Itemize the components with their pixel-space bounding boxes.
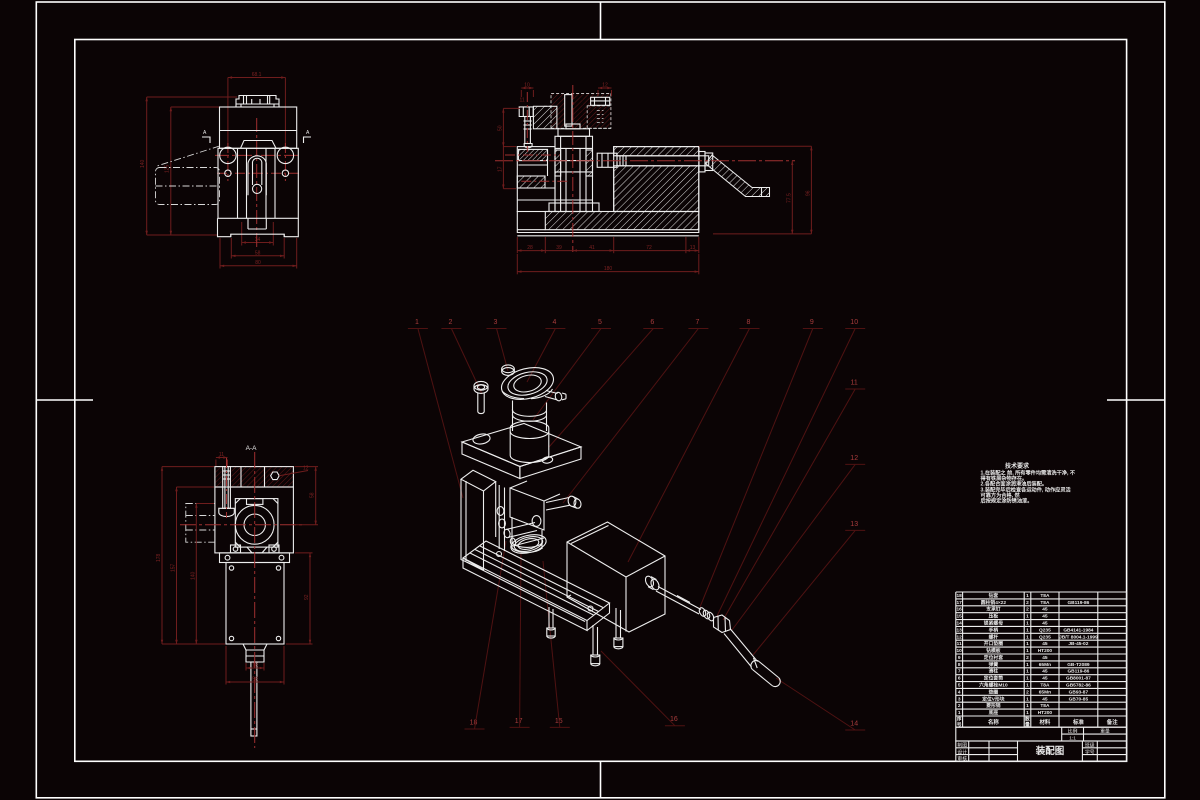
svg-text:58: 58 [252, 676, 258, 682]
svg-text:6: 6 [958, 676, 961, 682]
svg-text:65Mn: 65Mn [1039, 662, 1051, 668]
svg-text:45: 45 [1042, 669, 1048, 675]
svg-text:1: 1 [1026, 627, 1029, 633]
svg-text:1: 1 [1026, 662, 1029, 668]
svg-text:JB/T 8004.1-1999: JB/T 8004.1-1999 [1059, 634, 1098, 640]
svg-text:2: 2 [448, 319, 452, 326]
svg-text:1: 1 [1026, 641, 1029, 647]
svg-text:T8A: T8A [1040, 600, 1050, 606]
svg-text:10: 10 [957, 648, 963, 654]
svg-text:备注: 备注 [1106, 718, 1118, 726]
svg-text:16: 16 [957, 607, 963, 613]
svg-text:2: 2 [1026, 655, 1029, 661]
svg-text:钻模板: 钻模板 [986, 647, 1001, 654]
svg-text:名称: 名称 [988, 718, 999, 726]
svg-text:GB70-85: GB70-85 [1069, 696, 1089, 702]
svg-text:45: 45 [1042, 696, 1048, 702]
svg-text:9: 9 [810, 319, 814, 326]
svg-text:GB5782-86: GB5782-86 [1066, 683, 1091, 689]
svg-text:定位衬套: 定位衬套 [984, 654, 1003, 661]
svg-text:13: 13 [690, 245, 696, 251]
svg-text:45: 45 [1042, 641, 1048, 647]
svg-text:2: 2 [1026, 689, 1029, 695]
svg-text:标准: 标准 [1072, 718, 1084, 726]
svg-text:125: 125 [165, 164, 171, 173]
svg-text:1: 1 [1026, 621, 1029, 627]
svg-text:45: 45 [1042, 655, 1048, 661]
svg-text:15: 15 [957, 614, 963, 620]
svg-text:45: 45 [1042, 614, 1048, 620]
svg-text:GB119-86: GB119-86 [1067, 600, 1089, 606]
svg-text:1: 1 [1026, 648, 1029, 654]
svg-text:9: 9 [958, 655, 961, 661]
svg-text:14: 14 [957, 621, 963, 627]
svg-text:支承钉: 支承钉 [986, 606, 1001, 613]
svg-text:12: 12 [602, 82, 608, 88]
svg-text:7: 7 [695, 319, 699, 326]
svg-text:58: 58 [310, 492, 316, 498]
svg-text:弹簧: 弹簧 [989, 661, 999, 668]
svg-text:制图: 制图 [957, 742, 967, 749]
svg-text:1: 1 [1026, 683, 1029, 689]
svg-text:18: 18 [957, 593, 963, 599]
svg-text:学号: 学号 [1085, 748, 1095, 755]
svg-text:1: 1 [1026, 593, 1029, 599]
svg-text:58: 58 [255, 250, 261, 256]
svg-text:T8A: T8A [1040, 703, 1050, 709]
svg-text:1: 1 [415, 319, 419, 326]
svg-text:装配图: 装配图 [1035, 745, 1065, 757]
svg-text:3: 3 [958, 696, 961, 702]
svg-text:10: 10 [524, 82, 530, 88]
svg-text:班级: 班级 [1085, 742, 1095, 749]
svg-text:1: 1 [1026, 634, 1029, 640]
svg-text:钻套: 钻套 [989, 592, 999, 599]
svg-text:序: 序 [957, 716, 962, 723]
svg-text:六角螺栓M10: 六角螺栓M10 [979, 682, 1008, 689]
svg-text:65Mn: 65Mn [1039, 689, 1051, 695]
svg-text:6: 6 [650, 319, 654, 326]
svg-text:开口垫圈: 开口垫圈 [984, 640, 1003, 647]
svg-text:螺杆: 螺杆 [989, 633, 999, 640]
svg-text:5: 5 [598, 319, 602, 326]
svg-text:1: 1 [1026, 676, 1029, 682]
svg-text:定位套筒: 定位套筒 [984, 675, 1003, 682]
svg-text:GB119-86: GB119-86 [1067, 669, 1089, 675]
svg-text:77.5: 77.5 [786, 193, 792, 203]
svg-text:重量: 重量 [1100, 728, 1110, 735]
svg-text:2: 2 [958, 703, 961, 709]
svg-text:1: 1 [1026, 710, 1029, 716]
svg-text:13: 13 [957, 627, 963, 633]
svg-text:HT200: HT200 [1038, 648, 1053, 654]
svg-text:180: 180 [604, 266, 613, 272]
svg-text:GB93-87: GB93-87 [1069, 689, 1089, 695]
svg-text:审核: 审核 [957, 755, 967, 762]
svg-text:12: 12 [303, 466, 309, 472]
svg-text:数: 数 [1025, 716, 1030, 723]
svg-text:技术要求: 技术要求 [1005, 462, 1030, 470]
svg-text:2: 2 [1026, 607, 1029, 613]
svg-text:45: 45 [1042, 621, 1048, 627]
svg-text:10: 10 [850, 319, 858, 326]
svg-text:5: 5 [958, 683, 961, 689]
svg-text:垫圈: 垫圈 [989, 688, 999, 695]
svg-text:157: 157 [171, 563, 177, 572]
svg-text:底座: 底座 [989, 709, 999, 716]
svg-text:140: 140 [190, 571, 196, 580]
svg-text:45: 45 [1042, 676, 1048, 682]
svg-text:1:1: 1:1 [1069, 735, 1076, 741]
svg-text:17: 17 [957, 600, 963, 606]
svg-text:8: 8 [958, 662, 961, 668]
svg-text:13: 13 [850, 521, 858, 528]
svg-text:178: 178 [156, 553, 162, 562]
svg-text:比例: 比例 [1068, 728, 1078, 735]
svg-text:Q235: Q235 [1039, 627, 1051, 633]
svg-text:手柄: 手柄 [989, 626, 999, 633]
svg-text:34: 34 [255, 237, 261, 243]
svg-text:28: 28 [527, 245, 533, 251]
svg-text:后按规定涂防锈油漆。: 后按规定涂防锈油漆。 [981, 497, 1033, 505]
svg-text:菱形销: 菱形销 [986, 702, 1001, 709]
svg-text:45: 45 [1042, 607, 1048, 613]
svg-text:T8A: T8A [1040, 593, 1050, 599]
svg-text:11: 11 [851, 380, 858, 387]
svg-text:41: 41 [589, 245, 595, 251]
svg-text:8: 8 [747, 319, 751, 326]
svg-text:锁紧螺母: 锁紧螺母 [984, 620, 1003, 627]
svg-text:GB-T2089: GB-T2089 [1067, 662, 1090, 668]
svg-text:GB8001-87: GB8001-87 [1066, 676, 1091, 682]
svg-text:12: 12 [850, 455, 858, 462]
svg-text:T8A: T8A [1040, 683, 1050, 689]
svg-text:GB4141-1984: GB4141-1984 [1063, 627, 1093, 633]
svg-text:17: 17 [497, 166, 503, 172]
svg-text:14: 14 [850, 721, 858, 728]
svg-text:2: 2 [1026, 600, 1029, 606]
svg-text:96: 96 [805, 190, 811, 196]
svg-text:140: 140 [140, 159, 146, 168]
svg-text:1: 1 [1026, 703, 1029, 709]
svg-text:11: 11 [520, 98, 525, 104]
svg-text:18: 18 [252, 663, 258, 669]
svg-text:1: 1 [958, 710, 961, 716]
svg-text:11: 11 [219, 452, 224, 458]
svg-text:4: 4 [552, 319, 556, 326]
svg-text:17: 17 [515, 718, 523, 725]
svg-text:滑柱: 滑柱 [989, 668, 999, 675]
svg-text:39: 39 [556, 245, 562, 251]
svg-text:JB-45-02: JB-45-02 [1068, 641, 1088, 647]
svg-text:1: 1 [1026, 614, 1029, 620]
svg-text:压板: 压板 [989, 613, 999, 620]
svg-text:HT200: HT200 [1038, 710, 1053, 716]
svg-text:材料: 材料 [1039, 718, 1051, 726]
svg-text:设计: 设计 [957, 748, 967, 755]
svg-text:80: 80 [255, 260, 261, 266]
svg-text:72: 72 [646, 245, 652, 251]
svg-text:7: 7 [958, 669, 961, 675]
svg-text:1: 1 [1026, 696, 1029, 702]
svg-text:定位V形块: 定位V形块 [982, 695, 1005, 702]
svg-text:12: 12 [957, 634, 963, 640]
svg-text:68.1: 68.1 [252, 72, 262, 78]
svg-text:圆柱销4×22: 圆柱销4×22 [981, 599, 1007, 606]
svg-text:Q235: Q235 [1039, 634, 1051, 640]
svg-text:4: 4 [958, 689, 961, 695]
svg-text:50: 50 [497, 125, 503, 131]
svg-text:11: 11 [957, 641, 962, 647]
svg-text:92: 92 [304, 594, 310, 600]
svg-text:1: 1 [1026, 669, 1029, 675]
svg-text:3: 3 [494, 319, 498, 326]
svg-text:A-A: A-A [246, 445, 258, 452]
